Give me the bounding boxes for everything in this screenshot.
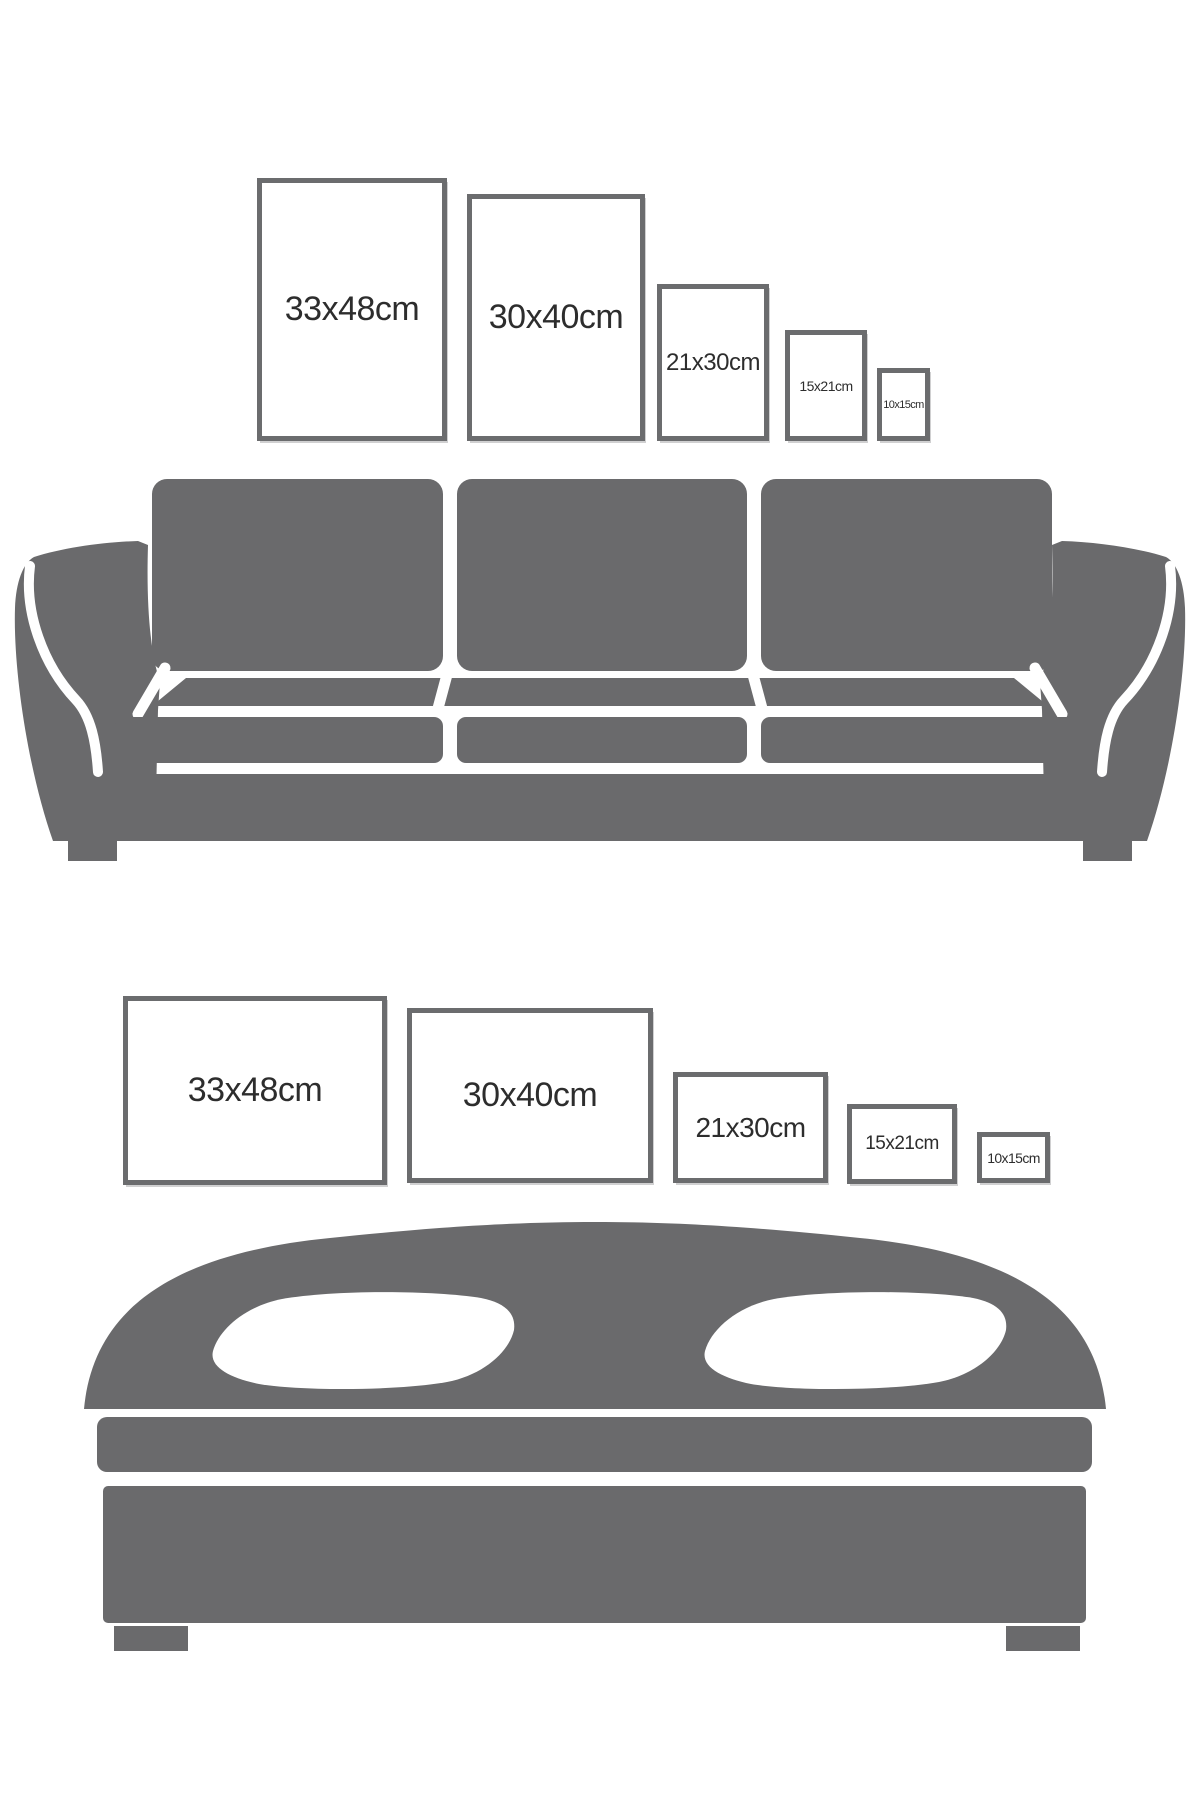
frame-size-label: 33x48cm xyxy=(285,290,419,329)
bed-leg xyxy=(114,1626,188,1651)
frame-size-label: 15x21cm xyxy=(865,1133,939,1155)
sofa-base xyxy=(46,774,1154,841)
frame-30x40-portrait: 30x40cm xyxy=(467,194,645,441)
sofa-back-cushion xyxy=(457,479,747,671)
frame-size-label: 10x15cm xyxy=(987,1150,1040,1166)
frame-size-label: 33x48cm xyxy=(188,1071,322,1110)
frame-size-label: 30x40cm xyxy=(463,1076,597,1115)
frame-size-label: 21x30cm xyxy=(695,1112,805,1144)
sofa-seat-cushion xyxy=(457,717,747,763)
frame-size-label: 15x21cm xyxy=(799,378,852,394)
bed-mattress xyxy=(97,1417,1092,1472)
sofa-back-cushion xyxy=(152,479,443,671)
sofa-back-cushion xyxy=(761,479,1052,671)
frame-33x48-landscape: 33x48cm xyxy=(123,996,387,1185)
bed-icon xyxy=(0,1195,1200,1660)
frame-15x21-portrait: 15x21cm xyxy=(785,330,867,441)
bed-leg xyxy=(1006,1626,1080,1651)
bed-base xyxy=(103,1486,1086,1623)
frame-size-label: 10x15cm xyxy=(883,399,923,411)
sofa-seat-deck xyxy=(152,678,1048,706)
frame-15x21-landscape: 15x21cm xyxy=(847,1104,957,1184)
frame-size-label: 21x30cm xyxy=(666,349,760,377)
frame-33x48-portrait: 33x48cm xyxy=(257,178,447,441)
frame-21x30-portrait: 21x30cm xyxy=(657,284,769,441)
sofa-seat-cushion xyxy=(761,717,1075,763)
frame-size-label: 30x40cm xyxy=(489,298,623,337)
sofa-leg xyxy=(68,841,117,861)
sofa-icon xyxy=(0,430,1200,870)
bed-pillow xyxy=(213,1292,515,1389)
frame-21x30-landscape: 21x30cm xyxy=(673,1072,828,1183)
frame-10x15-landscape: 10x15cm xyxy=(977,1132,1050,1183)
sofa-leg xyxy=(1083,841,1132,861)
sofa-seat-cushion xyxy=(115,717,443,763)
bed-pillow xyxy=(705,1292,1007,1389)
poster-size-guide-canvas: 33x48cm 30x40cm 21x30cm 15x21cm 10x15cm xyxy=(0,0,1200,1800)
frame-30x40-landscape: 30x40cm xyxy=(407,1008,653,1183)
